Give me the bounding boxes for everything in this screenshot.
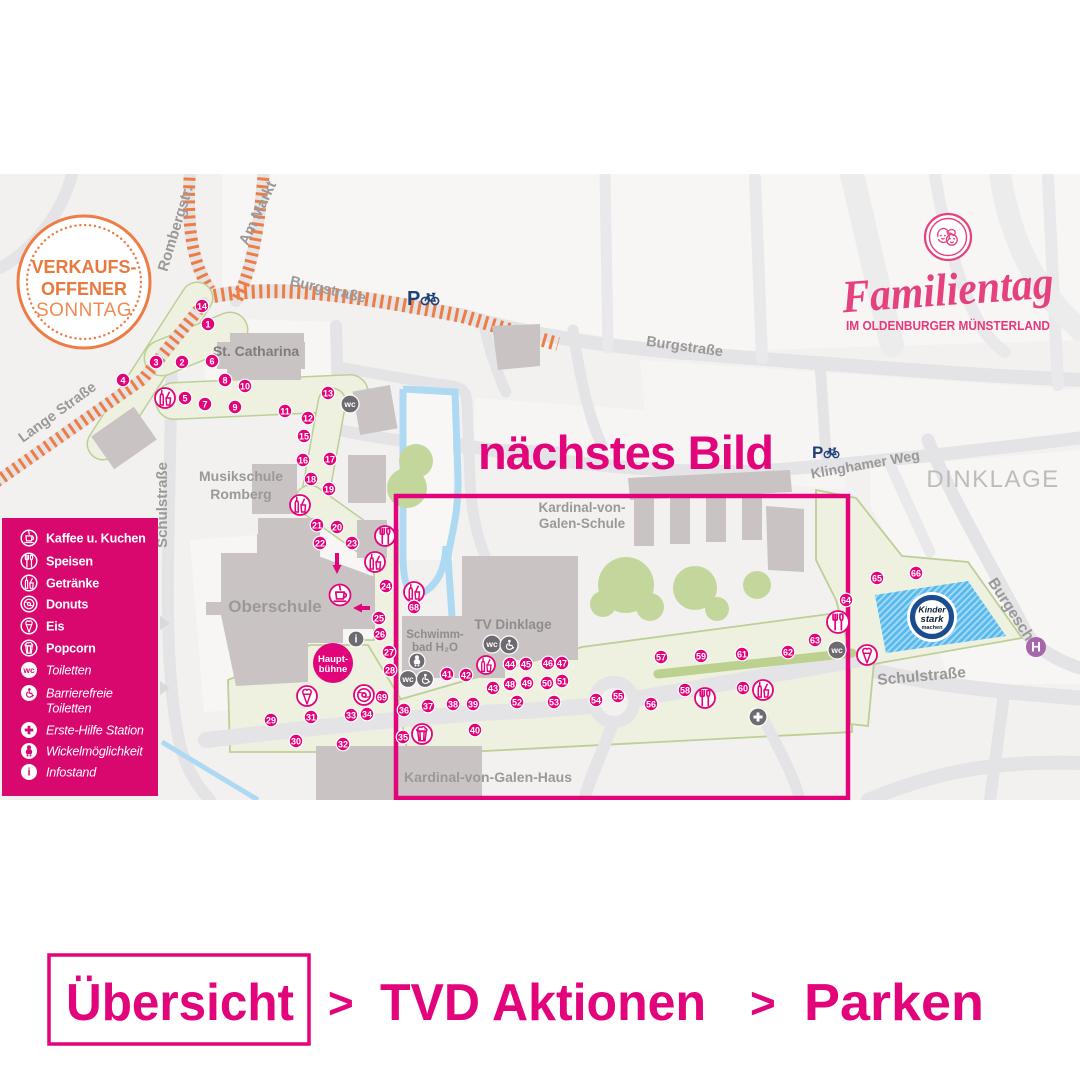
svg-text:Oberschule: Oberschule (228, 597, 322, 616)
svg-text:i: i (354, 634, 357, 646)
svg-text:13: 13 (323, 388, 333, 398)
svg-text:4: 4 (120, 375, 125, 385)
svg-text:stark: stark (921, 614, 945, 625)
svg-text:15: 15 (299, 431, 309, 441)
svg-text:58: 58 (680, 685, 690, 695)
svg-text:8: 8 (222, 375, 227, 385)
svg-text:Barrierefreie: Barrierefreie (46, 687, 113, 701)
svg-text:Donuts: Donuts (46, 598, 88, 612)
svg-text:69: 69 (377, 692, 387, 702)
svg-text:P: P (812, 443, 823, 462)
svg-text:18: 18 (306, 474, 316, 484)
svg-text:44: 44 (505, 659, 515, 669)
svg-text:55: 55 (613, 691, 623, 701)
svg-text:DINKLAGE: DINKLAGE (926, 466, 1059, 493)
svg-text:34: 34 (362, 709, 372, 719)
svg-text:P: P (407, 288, 420, 310)
svg-text:48: 48 (505, 679, 515, 689)
svg-text:37: 37 (423, 701, 433, 711)
svg-text:Kardinal-von-: Kardinal-von- (538, 500, 625, 515)
svg-text:25: 25 (374, 613, 384, 623)
svg-text:46: 46 (543, 658, 553, 668)
svg-text:42: 42 (461, 670, 471, 680)
svg-text:53: 53 (549, 697, 559, 707)
svg-text:39: 39 (468, 699, 478, 709)
svg-text:28: 28 (385, 665, 395, 675)
svg-text:43: 43 (488, 683, 498, 693)
svg-text:OFFENER: OFFENER (41, 279, 127, 299)
svg-text:nächstes Bild: nächstes Bild (478, 426, 774, 479)
svg-text:10: 10 (240, 381, 250, 391)
svg-text:wc: wc (830, 645, 843, 655)
svg-text:9: 9 (232, 402, 237, 412)
svg-text:36: 36 (399, 705, 409, 715)
svg-text:45: 45 (521, 659, 531, 669)
svg-text:54: 54 (591, 695, 601, 705)
svg-text:57: 57 (656, 652, 666, 662)
svg-text:16: 16 (298, 455, 308, 465)
svg-text:29: 29 (266, 715, 276, 725)
svg-text:Speisen: Speisen (46, 555, 93, 569)
svg-text:12: 12 (303, 413, 313, 423)
svg-text:SONNTAG: SONNTAG (36, 300, 132, 321)
svg-text:60: 60 (738, 683, 748, 693)
svg-text:49: 49 (522, 678, 532, 688)
svg-text:Eis: Eis (46, 620, 64, 634)
svg-text:21: 21 (312, 520, 322, 530)
svg-text:30: 30 (291, 736, 301, 746)
svg-text:52: 52 (512, 697, 522, 707)
svg-text:>: > (328, 979, 354, 1028)
svg-text:St. Catharina: St. Catharina (213, 343, 300, 359)
svg-text:22: 22 (315, 538, 325, 548)
svg-text:40: 40 (470, 725, 480, 735)
svg-text:IM OLDENBURGER MÜNSTERLAND: IM OLDENBURGER MÜNSTERLAND (846, 318, 1050, 333)
svg-text:24: 24 (381, 581, 391, 591)
svg-text:7: 7 (202, 399, 207, 409)
svg-text:47: 47 (557, 658, 567, 668)
svg-text:1: 1 (205, 319, 210, 329)
svg-text:65: 65 (872, 573, 882, 583)
svg-text:Galen-Schule: Galen-Schule (539, 516, 626, 531)
svg-text:26: 26 (375, 629, 385, 639)
svg-text:Erste-Hilfe Station: Erste-Hilfe Station (46, 724, 144, 738)
svg-text:Getränke: Getränke (46, 577, 99, 591)
svg-text:Schwimm-: Schwimm- (406, 629, 464, 641)
svg-text:68: 68 (409, 602, 419, 612)
svg-text:66: 66 (911, 568, 921, 578)
svg-text:wc: wc (485, 639, 498, 649)
svg-text:31: 31 (306, 712, 316, 722)
svg-text:machen: machen (921, 625, 943, 631)
svg-text:50: 50 (542, 678, 552, 688)
svg-text:bad H₂O: bad H₂O (412, 642, 458, 654)
svg-text:17: 17 (325, 454, 335, 464)
svg-text:Toiletten: Toiletten (46, 664, 92, 678)
svg-text:32: 32 (338, 739, 348, 749)
svg-text:11: 11 (280, 406, 290, 416)
svg-text:5: 5 (182, 393, 187, 403)
svg-text:Infostand: Infostand (46, 766, 97, 780)
svg-text:Romberg: Romberg (210, 486, 271, 502)
svg-text:H: H (1031, 640, 1041, 655)
svg-text:63: 63 (810, 635, 820, 645)
svg-text:56: 56 (646, 699, 656, 709)
svg-text:Musikschule: Musikschule (199, 468, 283, 484)
svg-text:Wickelmöglichkeit: Wickelmöglichkeit (46, 745, 143, 759)
svg-text:Kaffee u. Kuchen: Kaffee u. Kuchen (46, 532, 146, 546)
svg-text:27: 27 (384, 647, 394, 657)
svg-text:38: 38 (448, 699, 458, 709)
svg-text:61: 61 (737, 649, 747, 659)
svg-text:3: 3 (153, 357, 158, 367)
svg-text:Kinder: Kinder (918, 605, 946, 615)
svg-text:62: 62 (783, 647, 793, 657)
svg-text:35: 35 (398, 732, 408, 742)
svg-text:>: > (750, 979, 776, 1028)
svg-text:wc: wc (401, 674, 414, 684)
svg-text:TV Dinklage: TV Dinklage (474, 617, 552, 632)
svg-text:wc: wc (343, 399, 356, 409)
svg-text:64: 64 (841, 595, 851, 605)
svg-text:Übersicht: Übersicht (66, 974, 294, 1032)
svg-text:Toiletten: Toiletten (46, 702, 92, 716)
svg-text:33: 33 (346, 710, 356, 720)
svg-text:Popcorn: Popcorn (46, 642, 96, 656)
svg-text:wc: wc (22, 665, 35, 675)
svg-text:19: 19 (324, 484, 334, 494)
svg-text:TVD Aktionen: TVD Aktionen (380, 974, 706, 1032)
svg-text:51: 51 (557, 676, 567, 686)
svg-text:2: 2 (179, 357, 184, 367)
svg-text:6: 6 (209, 356, 214, 366)
svg-text:bühne: bühne (319, 664, 348, 675)
svg-text:41: 41 (442, 669, 452, 679)
svg-text:14: 14 (197, 301, 207, 311)
svg-text:VERKAUFS-: VERKAUFS- (31, 257, 136, 277)
svg-text:59: 59 (696, 651, 706, 661)
svg-text:i: i (27, 767, 30, 779)
svg-text:20: 20 (332, 522, 342, 532)
svg-text:23: 23 (347, 538, 357, 548)
svg-text:Parken: Parken (804, 974, 984, 1032)
svg-text:Kardinal-von-Galen-Haus: Kardinal-von-Galen-Haus (404, 769, 572, 785)
